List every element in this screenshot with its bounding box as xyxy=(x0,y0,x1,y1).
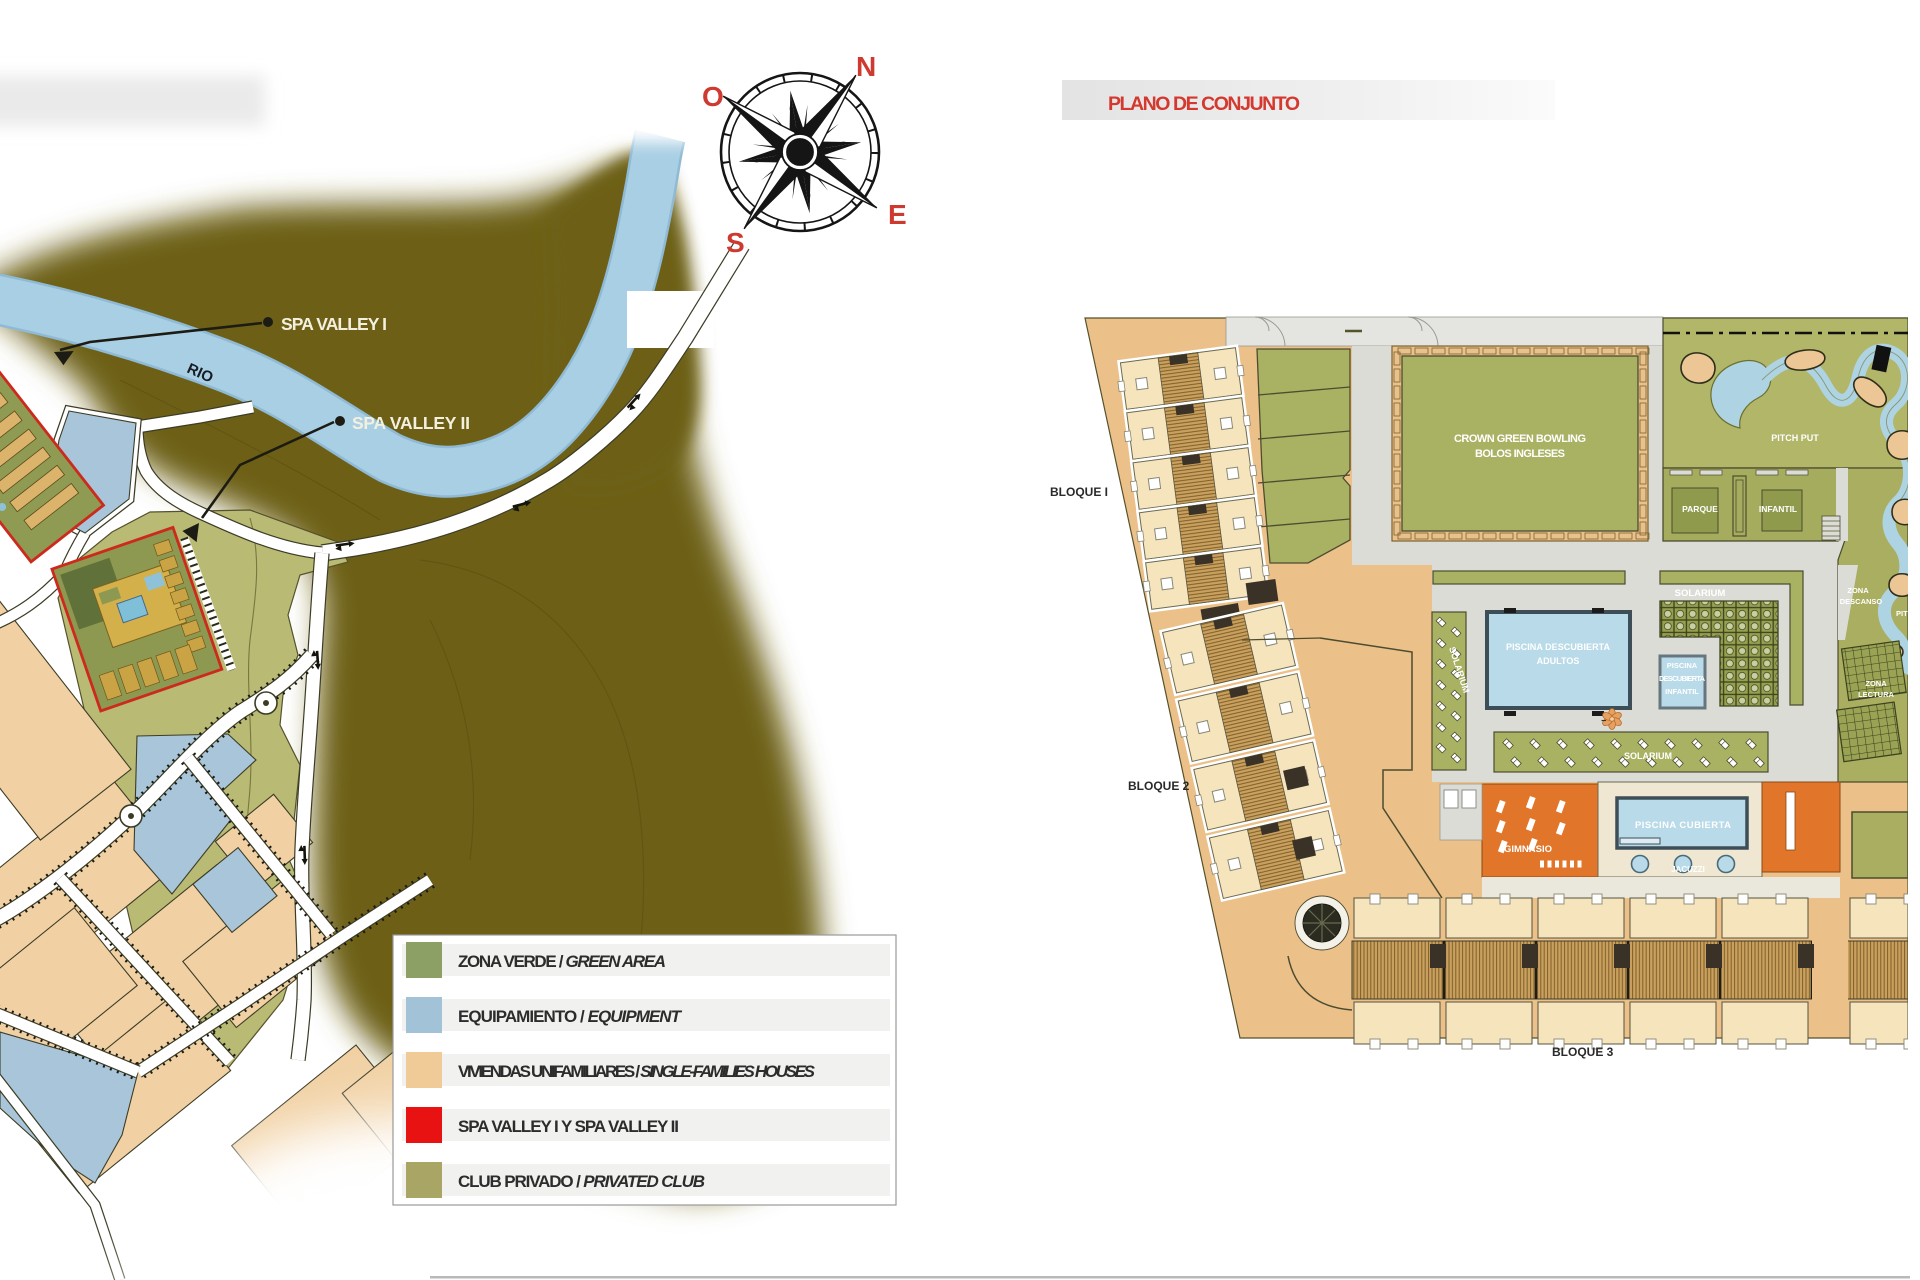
svg-text:E: E xyxy=(888,199,907,230)
svg-text:GIMNASIO: GIMNASIO xyxy=(1504,844,1552,855)
svg-text:DESCANSO: DESCANSO xyxy=(1840,597,1883,606)
svg-text:PLANO DE CONJUNTO: PLANO DE CONJUNTO xyxy=(1108,93,1300,115)
svg-text:BLOQUE 2: BLOQUE 2 xyxy=(1128,779,1190,793)
svg-text:O: O xyxy=(702,81,724,112)
svg-text:JACUZZI: JACUZZI xyxy=(1671,865,1705,874)
svg-text:INFANTIL: INFANTIL xyxy=(1759,504,1797,514)
svg-text:SPA VALLEY I Y SPA VALLEY II: SPA VALLEY I Y SPA VALLEY II xyxy=(458,1117,679,1136)
svg-text:BLOQUE I: BLOQUE I xyxy=(1050,485,1108,499)
svg-text:VIVIENDAS UNIFAMILIARES / SING: VIVIENDAS UNIFAMILIARES / SINGLE-FAMILIE… xyxy=(458,1062,816,1081)
svg-text:ZONA: ZONA xyxy=(1847,586,1869,595)
svg-text:ZONA: ZONA xyxy=(1865,679,1887,688)
svg-text:SPA VALLEY II: SPA VALLEY II xyxy=(352,413,470,433)
svg-text:PARQUE: PARQUE xyxy=(1682,504,1718,514)
svg-text:SOLARIUM: SOLARIUM xyxy=(1675,588,1726,599)
svg-text:ZONA VERDE / GREEN AREA: ZONA VERDE / GREEN AREA xyxy=(458,952,666,971)
svg-text:S: S xyxy=(726,227,745,258)
svg-text:EQUIPAMIENTO / EQUIPMENT: EQUIPAMIENTO / EQUIPMENT xyxy=(458,1007,683,1026)
svg-text:DESCUBIERTA: DESCUBIERTA xyxy=(1659,674,1706,683)
svg-text:PISCINA: PISCINA xyxy=(1667,661,1698,670)
svg-text:CROWN GREEN BOWLING: CROWN GREEN BOWLING xyxy=(1454,433,1586,445)
svg-text:N: N xyxy=(856,51,876,82)
svg-text:SPA VALLEY I: SPA VALLEY I xyxy=(281,314,387,334)
svg-text:ADULTOS: ADULTOS xyxy=(1537,656,1580,666)
svg-text:CLUB PRIVADO / PRIVATED CLUB: CLUB PRIVADO / PRIVATED CLUB xyxy=(458,1172,705,1191)
svg-text:PITCH PUT: PITCH PUT xyxy=(1771,433,1819,443)
svg-text:BLOQUE 3: BLOQUE 3 xyxy=(1552,1045,1614,1059)
svg-text:SOLARIUM: SOLARIUM xyxy=(1624,751,1672,761)
svg-text:PISCINA CUBIERTA: PISCINA CUBIERTA xyxy=(1635,820,1731,831)
svg-text:LECTURA: LECTURA xyxy=(1858,690,1894,699)
svg-text:INFANTIL: INFANTIL xyxy=(1665,687,1699,696)
svg-text:BOLOS INGLESES: BOLOS INGLESES xyxy=(1475,448,1565,460)
svg-text:PISCINA DESCUBIERTA: PISCINA DESCUBIERTA xyxy=(1506,642,1611,652)
